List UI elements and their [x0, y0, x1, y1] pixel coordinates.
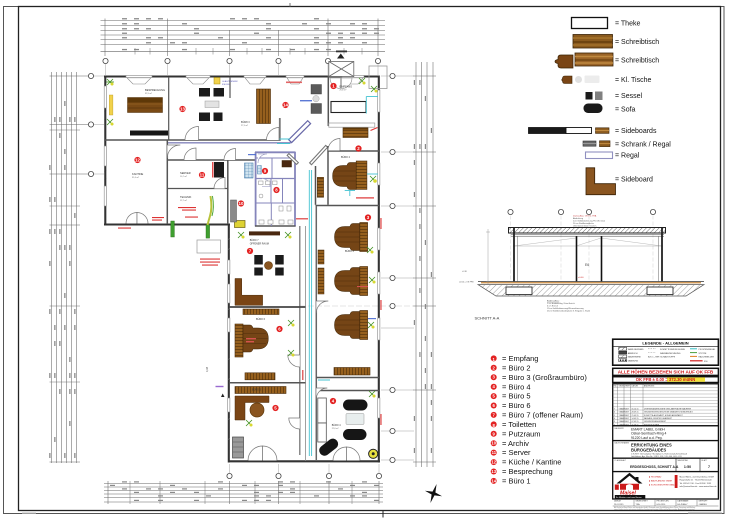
svg-text:= Besprechung: = Besprechung: [502, 467, 553, 476]
svg-text:21.09.15: 21.09.15: [632, 415, 639, 417]
svg-text:DIVERSE ÄNDERUNGEN GEM. ABSPRA: DIVERSE ÄNDERUNGEN GEM. ABSPRACHE BAUHER…: [644, 407, 692, 410]
svg-text:Tel. 09154 / 910 · Fax 09154 /: Tel. 09154 / 910 · Fax 09154 / 1595: [680, 483, 712, 485]
svg-text:28.09.15: 28.09.15: [632, 412, 639, 414]
svg-text:T.KAMINSKY: T.KAMINSKY: [619, 417, 630, 420]
svg-text:BAUHERR: BAUHERR: [615, 427, 625, 430]
svg-text:12: 12: [135, 158, 140, 163]
svg-text:GEZEICHNET: GEZEICHNET: [636, 501, 649, 503]
svg-text:Hauptstraße 21 · 91224 Hohenst: Hauptstraße 21 · 91224 Hohenstadt: [680, 479, 712, 482]
svg-text:IND.: IND.: [614, 386, 618, 388]
svg-text:11: 11: [200, 173, 205, 178]
svg-text:ÄNDERUNG: ÄNDERUNG: [644, 385, 655, 388]
svg-text:= Regal: = Regal: [615, 153, 640, 160]
svg-text:10,7 m²: 10,7 m²: [180, 175, 187, 178]
svg-text:= Archiv: = Archiv: [502, 439, 529, 448]
svg-text:BÜRO I: BÜRO I: [241, 120, 250, 124]
svg-text:31,6 m²: 31,6 m²: [132, 176, 139, 179]
svg-text:RAUMBEZEICHNUNG: RAUMBEZEICHNUNG: [660, 352, 681, 355]
svg-text:T.KAMINSKY: T.KAMINSKY: [619, 411, 630, 414]
svg-text:10: 10: [239, 201, 244, 206]
svg-text:10: 10: [491, 441, 496, 446]
svg-text:4,38: 4,38: [205, 366, 209, 372]
svg-text:= Sofa: = Sofa: [615, 107, 636, 114]
svg-text:DATUM: DATUM: [632, 385, 639, 388]
svg-text:4: 4: [614, 418, 615, 420]
svg-text:6: 6: [614, 412, 615, 414]
svg-text:BAUVORHABEN: BAUVORHABEN: [615, 442, 630, 445]
svg-text:ERDGESCHOSS, SCHNITT A-A: ERDGESCHOSS, SCHNITT A-A: [630, 465, 679, 469]
svg-text:GRUNDRISS ANGEPASST: GRUNDRISS ANGEPASST: [644, 420, 667, 423]
svg-text:7: 7: [708, 465, 710, 469]
svg-text:3: 3: [614, 421, 615, 423]
svg-text:GEZEICHNET: GEZEICHNET: [619, 386, 631, 388]
svg-text:DATUM: DATUM: [614, 500, 621, 503]
svg-text:WAND BESTAND: WAND BESTAND: [628, 348, 644, 351]
svg-text:05.10.15: 05.10.15: [632, 408, 639, 410]
svg-text:13: 13: [180, 107, 185, 112]
svg-text:MASSSTAB: MASSSTAB: [678, 459, 689, 462]
svg-text:T.KAMINSKY: T.KAMINSKY: [619, 407, 630, 410]
svg-text:= Büro 7 (offener Raum): = Büro 7 (offener Raum): [502, 411, 583, 420]
svg-text:= Küche / Kantine: = Küche / Kantine: [502, 458, 561, 467]
svg-text:±0.00 = OK FFB: ±0.00 = OK FFB: [459, 282, 474, 284]
svg-text:■ SCHLÜSSELFERTIGBAU: ■ SCHLÜSSELFERTIGBAU: [649, 484, 676, 487]
svg-text:= Büro 2: = Büro 2: [502, 363, 531, 372]
svg-text:1:50: 1:50: [684, 465, 691, 469]
svg-text:DATEINAME: DATEINAME: [678, 500, 690, 503]
svg-text:Ihr Meister rund ums Bauen: Ihr Meister rund ums Bauen: [616, 496, 642, 499]
svg-text:F30 RS: F30 RS: [222, 84, 230, 86]
svg-text:25,8 m²: 25,8 m²: [340, 89, 347, 92]
svg-text:■ HOCHBAU: ■ HOCHBAU: [649, 476, 662, 479]
svg-text:= Büro 3 (Großraumbüro): = Büro 3 (Großraumbüro): [502, 373, 587, 382]
svg-text:±0.00: ±0.00: [578, 277, 584, 279]
svg-text:SCHNITT A-A: SCHNITT A-A: [475, 316, 500, 321]
svg-text:14.09.15: 14.09.15: [632, 418, 639, 420]
svg-text:14: 14: [491, 478, 496, 483]
svg-text:12: 12: [491, 460, 496, 465]
svg-text:5: 5: [614, 415, 615, 417]
svg-text:RAUCHMELDER: RAUCHMELDER: [699, 356, 715, 359]
svg-text:= Schrank / Regal: = Schrank / Regal: [615, 142, 671, 149]
svg-text:= Putzraum: = Putzraum: [502, 429, 541, 438]
svg-text:BÜRO 5: BÜRO 5: [252, 389, 262, 392]
svg-text:0-14-1310: 0-14-1310: [657, 504, 666, 506]
svg-text:29.01.2015: 29.01.2015: [614, 504, 623, 506]
svg-text:EG-PLAN-7: EG-PLAN-7: [678, 503, 688, 506]
svg-text:91220 Lauf a.d. Peg.: 91220 Lauf a.d. Peg.: [631, 436, 663, 440]
svg-text:GRUNDRISS ERDGESCHOSS GEÄNDERT: GRUNDRISS ERDGESCHOSS GEÄNDERT, MÖBLIERU…: [644, 411, 693, 414]
svg-text:= Empfang: = Empfang: [502, 354, 538, 363]
svg-text:BÜRO 4: BÜRO 4: [332, 424, 342, 427]
svg-text:TECHNIK: TECHNIK: [180, 195, 192, 199]
svg-text:J.MAISEL: J.MAISEL: [699, 503, 707, 506]
svg-text:22,6 m²: 22,6 m²: [332, 427, 339, 430]
svg-text:32,5 m²: 32,5 m²: [145, 92, 152, 95]
svg-text:= Theke: = Theke: [615, 21, 640, 28]
svg-text:GLASTRENNW.: GLASTRENNW.: [222, 80, 238, 83]
svg-text:STÜTZE: STÜTZE: [699, 352, 707, 355]
svg-text:SERVER: SERVER: [180, 171, 191, 175]
svg-text:in E-KFZ: Gemarkplatz: Marktpl: in E-KFZ: Gemarkplatz: Marktplatz 5, Roh…: [631, 453, 687, 456]
svg-text:KANTINE: KANTINE: [132, 172, 144, 176]
svg-text:= Büro 4: = Büro 4: [502, 382, 531, 391]
svg-text:BLATT: BLATT: [702, 459, 709, 462]
svg-text:EMPFANG: EMPFANG: [340, 85, 353, 89]
svg-text:= Sideboard: = Sideboard: [615, 177, 653, 184]
svg-text:= Kl. Tische: = Kl. Tische: [615, 77, 651, 84]
svg-text:■ BAUPLANUNG GMBH: ■ BAUPLANUNG GMBH: [649, 480, 672, 483]
svg-text:PROJEKT-NR.: PROJEKT-NR.: [657, 501, 670, 503]
svg-text:07.09.15: 07.09.15: [632, 421, 639, 423]
svg-text:BESPRECHUNG: BESPRECHUNG: [145, 88, 165, 92]
svg-text:= Büro 6: = Büro 6: [502, 401, 531, 410]
svg-text:info@maisel-bau.de · www.maise: info@maisel-bau.de · www.maisel-bau.de: [680, 486, 718, 488]
svg-text:BÜRO 2: BÜRO 2: [341, 156, 351, 159]
svg-text:ABBRUCH: ABBRUCH: [628, 352, 638, 355]
svg-text:OK FFB ± 0.00 = 372.30 müNN: OK FFB ± 0.00 = 372.30 müNN: [636, 377, 695, 382]
svg-text:7: 7: [614, 408, 615, 410]
svg-text:11: 11: [492, 450, 497, 455]
svg-text:14: 14: [283, 103, 288, 108]
svg-text:BÜROGEBÄUDES: BÜROGEBÄUDES: [631, 447, 667, 452]
svg-text:T.KAMINSKY: T.KAMINSKY: [619, 420, 630, 423]
svg-text:MAUERWERK: MAUERWERK: [628, 356, 642, 359]
svg-text:Maisel Wohn- und Gewerbebau Gm: Maisel Wohn- und Gewerbebau GmbH: [680, 476, 715, 478]
svg-text:13: 13: [491, 469, 496, 474]
svg-text:= Büro 1: = Büro 1: [502, 477, 531, 486]
svg-text:= Büro 5: = Büro 5: [502, 392, 531, 401]
svg-text:ALLE HÖHEN BEZIEHEN SICH AUF O: ALLE HÖHEN BEZIEHEN SICH AUF OK FFB: [618, 369, 714, 375]
svg-text:= Toiletten: = Toiletten: [502, 420, 536, 429]
svg-text:GEPRÜFT: GEPRÜFT: [699, 500, 709, 503]
svg-text:25cm Stahlbetonbodenplatte lt.: 25cm Stahlbetonbodenplatte lt. Eingabe v…: [547, 310, 590, 313]
svg-text:PFOSTENRIEGEL: PFOSTENRIEGEL: [699, 349, 717, 351]
svg-text:T.KAMINSKY: T.KAMINSKY: [619, 414, 630, 417]
svg-text:B25 C - REF. SCHADSTOFFE: B25 C - REF. SCHADSTOFFE: [648, 356, 676, 359]
svg-text:BÜRO 6: BÜRO 6: [256, 318, 266, 321]
svg-text:E6: E6: [585, 263, 589, 267]
svg-text:FASSADE, FENSTER GEÄNDERT: FASSADE, FENSTER GEÄNDERT: [644, 417, 673, 420]
svg-text:PLANINHALT: PLANINHALT: [615, 459, 627, 462]
svg-text:= Sessel: = Sessel: [615, 93, 642, 100]
svg-text:SCHNITT A-A ERGÄNZT, HÖHEN ANG: SCHNITT A-A ERGÄNZT, HÖHEN ANGEPASST: [644, 414, 684, 417]
svg-text:27,9 m²: 27,9 m²: [241, 124, 248, 127]
svg-text:LEGENDE - ALLGEMEIN: LEGENDE - ALLGEMEIN: [642, 341, 688, 346]
svg-text:= Schreibtisch: = Schreibtisch: [615, 58, 659, 65]
svg-text:OFFENER RAUM: OFFENER RAUM: [250, 242, 269, 245]
svg-text:= Server: = Server: [502, 448, 531, 457]
svg-text:SCHNITTFÜHRUNGSLINIE: SCHNITTFÜHRUNGSLINIE: [660, 348, 686, 351]
svg-text:BÜRO 3: BÜRO 3: [345, 250, 355, 253]
svg-text:= Schreibtisch: = Schreibtisch: [615, 39, 659, 46]
svg-text:DÄMMUNG: DÄMMUNG: [628, 359, 639, 362]
svg-text:= Sideboards: = Sideboards: [615, 128, 657, 135]
svg-text:12,7 m²: 12,7 m²: [180, 199, 187, 202]
